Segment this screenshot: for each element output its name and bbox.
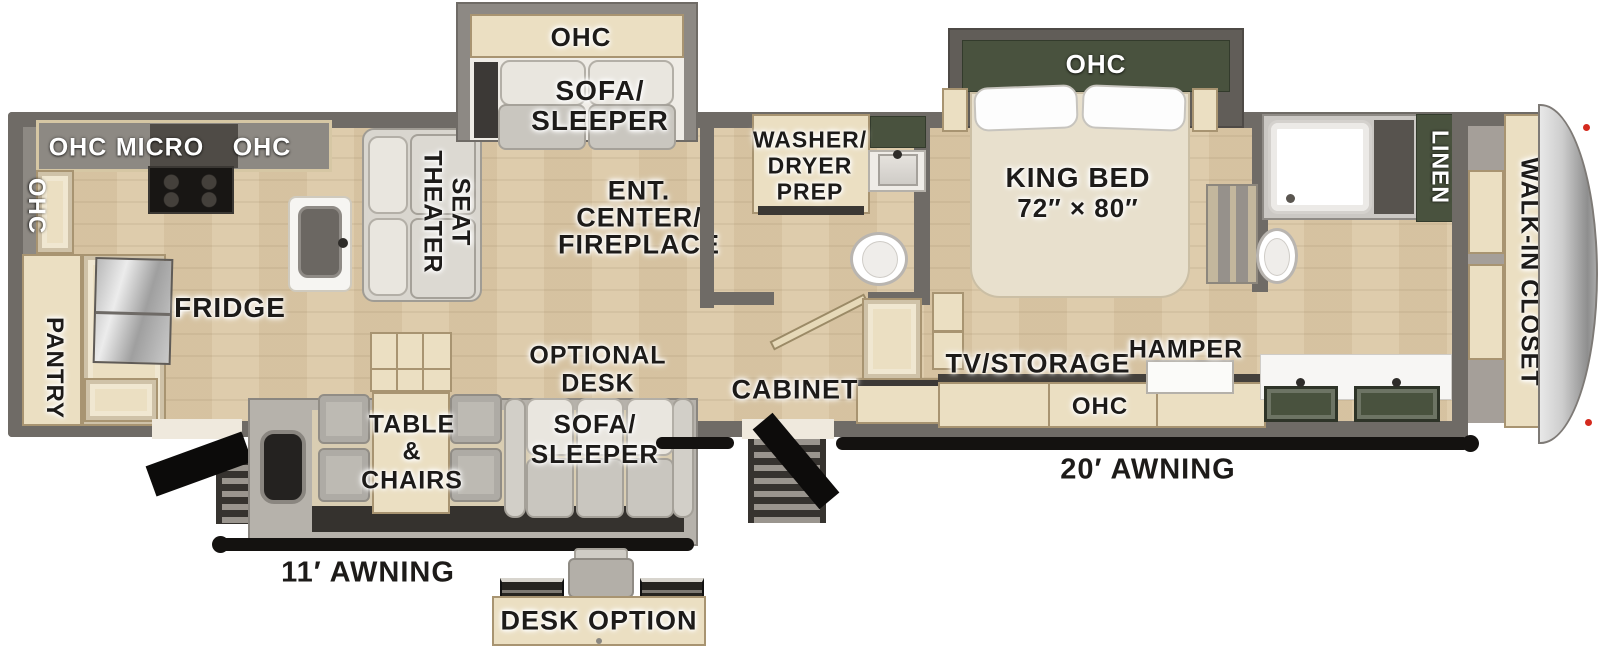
sofa2-armrest [672,398,694,518]
pillow-left [973,84,1078,132]
vanity-sink-left [1264,386,1338,422]
closet-shelf-bottom [1468,264,1504,360]
label-washer-line3: PREP [777,181,844,204]
label-sofa-line1: SOFA/ [555,77,644,105]
washer-closet-edge [758,206,864,215]
label-table-line1: TABLE [369,413,455,438]
closet-wall [1452,112,1468,437]
shower-drain-icon [1286,194,1295,203]
shower-tub [1268,120,1372,214]
hall-tall-cabinet [862,298,922,380]
label-optional-line2: DESK [561,372,634,397]
label-kitchen-ohc-right: OHC [233,136,292,161]
midbath-toilet-bowl [862,241,898,278]
desk-grommet-icon [596,638,602,644]
awning-bar-left-cap [212,536,229,553]
pillow-right [1081,84,1186,132]
label-cabinet: CABINET [732,377,859,404]
label-linen: LINEN [1429,130,1452,204]
theater-back-cushion [368,136,408,214]
label-table-line2: & [402,440,421,465]
label-sofa-slide-ohc: OHC [551,24,612,50]
label-kitchen-ohc-corner: OHC [24,178,48,234]
closet-shelf-top [1468,170,1504,254]
midbath-wall-bottom-left [700,292,774,305]
label-ent-line2: CENTER/ [576,205,702,232]
label-ent-line3: FIREPLACE [558,232,720,259]
sofa2-armrest [504,398,526,518]
label-washer-line2: DRYER [768,155,853,178]
label-sofa2-line1: SOFA/ [553,411,636,437]
range-cooktop [148,166,234,214]
label-kitchen-ohc-left: OHC [49,136,108,161]
shower-glass [1374,120,1414,214]
vanity-faucet-icon [1392,378,1401,387]
label-bedroom-ohc: OHC [1066,51,1127,77]
marker-light-bottom-icon [1585,419,1592,426]
midbath-ohc [870,116,926,148]
label-sofa2-line2: SLEEPER [531,441,659,467]
label-awning-right: 20′ AWNING [1060,456,1235,485]
awning-bar-right-cap [1462,435,1479,452]
label-console-ohc: OHC [1072,395,1128,419]
marker-light-top-icon [1583,124,1590,131]
kitchen-faucet-icon [338,238,348,248]
label-hamper: HAMPER [1129,338,1243,363]
dinette-chair [318,394,370,444]
label-theater-line1: THEATER [420,150,445,273]
label-theater-line2: SEAT [448,178,473,247]
awning-bar-right [836,437,1470,450]
label-table-line3: CHAIRS [361,469,463,494]
label-washer-line1: WASHER/ [753,129,867,152]
awning-bar-mid-segment [656,437,734,449]
rv-floorplan: OHC MICRO OHC OHC PANTRY FRIDGE THEATER … [0,0,1600,650]
desk-chair [568,558,634,598]
kitchen-sink [298,206,342,278]
label-awning-left: 11′ AWNING [281,559,455,588]
theater-back-cushion [368,218,408,296]
dinette-chair [450,394,502,444]
label-king-dims: 72″ × 80″ [1017,195,1138,221]
rearbath-toilet-bowl [1264,238,1290,276]
sofa-slide-end-table [474,62,498,138]
kitchen-bottom-counter [84,378,158,422]
label-king-bed: KING BED [1006,164,1151,192]
nightstand-right [1192,88,1218,132]
label-sofa-line2: SLEEPER [531,107,669,135]
front-cap [1538,104,1598,444]
label-pantry: PANTRY [42,317,66,419]
label-fridge: FRIDGE [174,294,286,322]
label-optional-line1: OPTIONAL [529,344,666,369]
label-ent-line1: ENT. [608,178,671,205]
midbath-faucet-icon [893,150,902,159]
vanity-sink-right [1354,386,1440,422]
bedroom-door [1206,184,1258,284]
label-kitchen-micro: MICRO [116,136,204,161]
hamper [1146,360,1234,394]
midbath-wall-left [700,112,714,308]
dinette-window [260,430,306,504]
label-tv-storage: TV/STORAGE [945,351,1130,378]
hall-base-cabinet [856,378,944,424]
dinette-hutch [370,332,452,392]
vanity-faucet-icon [1296,378,1305,387]
label-desk-option: DESK OPTION [500,608,697,635]
nightstand-left [942,88,968,132]
